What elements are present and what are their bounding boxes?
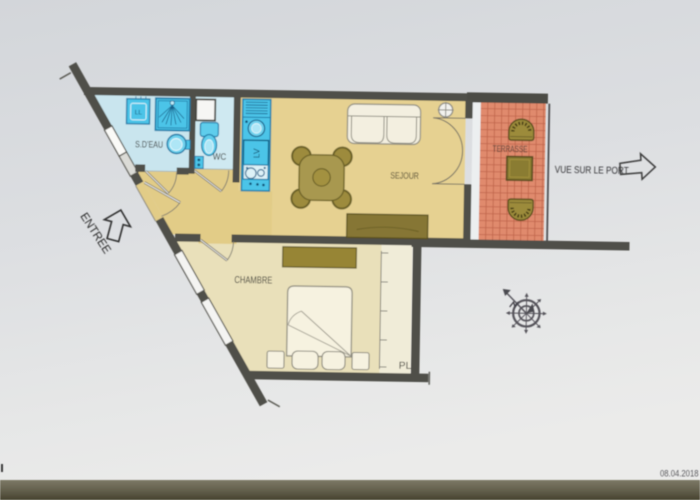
svg-text:TERRASSE: TERRASSE — [492, 144, 527, 155]
svg-text:CHAMBRE: CHAMBRE — [234, 275, 272, 287]
svg-text:VUE SUR LE PORT: VUE SUR LE PORT — [555, 164, 630, 177]
svg-text:S.D’EAU: S.D’EAU — [135, 139, 163, 150]
svg-text:PL: PL — [399, 360, 412, 372]
svg-text:SEJOUR: SEJOUR — [390, 171, 419, 182]
svg-text:08.04.2018: 08.04.2018 — [660, 469, 699, 480]
svg-text:WC: WC — [213, 152, 227, 163]
svg-text:LV: LV — [251, 148, 261, 158]
svg-text:LL: LL — [135, 109, 143, 116]
